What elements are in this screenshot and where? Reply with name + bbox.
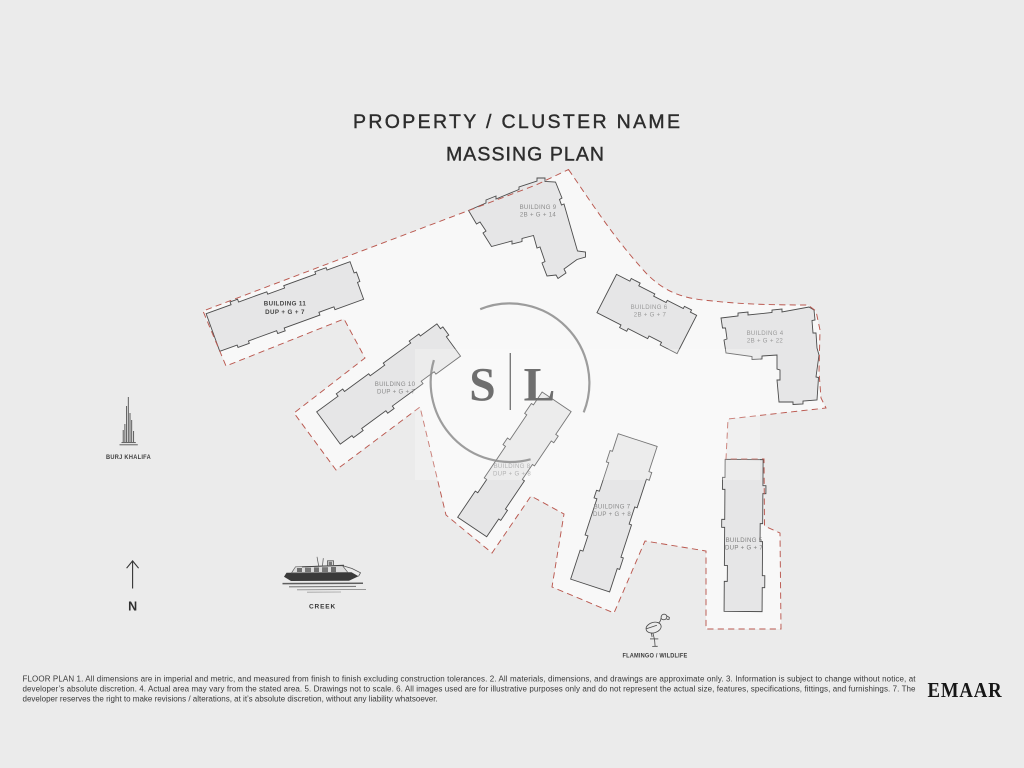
svg-text:S: S bbox=[469, 360, 495, 412]
svg-text:BURJ KHALIFA: BURJ KHALIFA bbox=[106, 455, 151, 461]
svg-text:DUP + G + 8: DUP + G + 8 bbox=[593, 511, 631, 518]
svg-text:developer’s absolute discretio: developer’s absolute discretion. 4. Actu… bbox=[23, 685, 917, 694]
svg-text:BUILDING 5: BUILDING 5 bbox=[726, 537, 763, 544]
svg-text:EMAAR: EMAAR bbox=[928, 678, 1003, 702]
svg-text:CREEK: CREEK bbox=[309, 604, 336, 611]
svg-text:FLOOR PLAN 1. All dimensions a: FLOOR PLAN 1. All dimensions are in impe… bbox=[23, 675, 917, 684]
svg-text:DUP + G + 7: DUP + G + 7 bbox=[725, 545, 763, 552]
svg-text:developer reserves the right t: developer reserves the right to make rev… bbox=[23, 695, 438, 704]
svg-text:BUILDING 6: BUILDING 6 bbox=[631, 304, 668, 311]
svg-text:2B + G + 14: 2B + G + 14 bbox=[520, 212, 556, 219]
svg-text:BUILDING 4: BUILDING 4 bbox=[747, 330, 784, 337]
svg-text:DUP + G + 7: DUP + G + 7 bbox=[377, 389, 415, 396]
svg-text:FLAMINGO / WILDLIFE: FLAMINGO / WILDLIFE bbox=[623, 654, 688, 660]
svg-text:N: N bbox=[128, 600, 137, 614]
svg-text:BUILDING 7: BUILDING 7 bbox=[594, 504, 631, 511]
svg-text:MASSING PLAN: MASSING PLAN bbox=[446, 144, 604, 166]
svg-text:2B + G + 22: 2B + G + 22 bbox=[747, 338, 783, 345]
svg-text:L: L bbox=[524, 360, 556, 412]
svg-text:DUP + G + 7: DUP + G + 7 bbox=[265, 309, 305, 316]
svg-text:BUILDING 11: BUILDING 11 bbox=[264, 301, 307, 308]
svg-text:2B + G + 7: 2B + G + 7 bbox=[634, 312, 667, 319]
svg-text:BUILDING 9: BUILDING 9 bbox=[520, 204, 557, 211]
svg-text:BUILDING 10: BUILDING 10 bbox=[375, 381, 416, 388]
